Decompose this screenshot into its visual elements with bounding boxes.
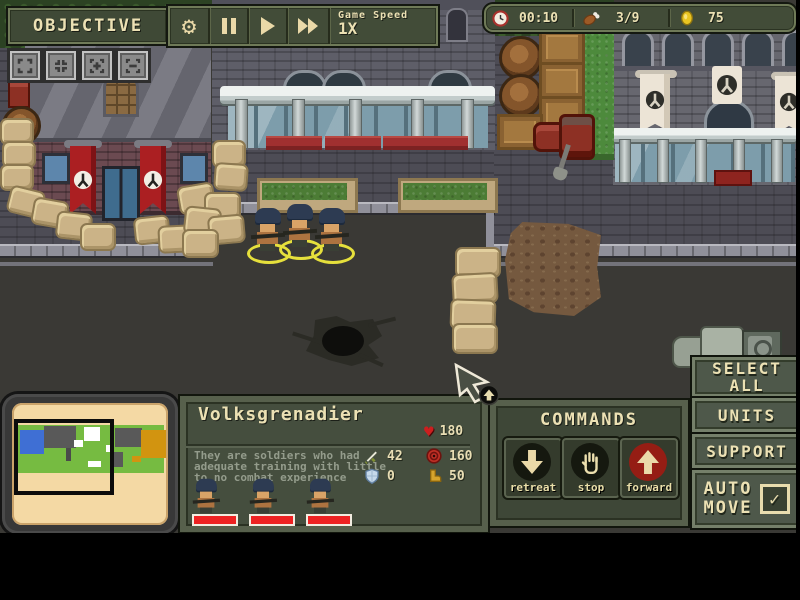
fast-forward-button[interactable] <box>288 8 330 44</box>
auto-move-toggle[interactable]: AUTO MOVE ✓ <box>692 470 800 528</box>
rations-value: 3/9 <box>616 11 639 26</box>
zoom-in-icon <box>88 57 106 75</box>
shrink-view-button[interactable] <box>46 51 76 80</box>
arch-window <box>702 30 734 70</box>
zoom-out-button[interactable] <box>118 51 148 80</box>
speed-value: 50 <box>449 469 465 484</box>
arch-window <box>622 30 654 70</box>
auto-move-line1: AUTO <box>704 480 753 499</box>
retreat-label: retreat <box>506 481 560 494</box>
arch-window <box>742 30 774 70</box>
game-screen: OBJECTIVE ⚙ Game Speed 1X <box>0 0 800 600</box>
settings-button[interactable]: ⚙ <box>170 8 210 44</box>
select-all-button[interactable]: SELECT ALL <box>692 357 800 397</box>
units-button[interactable]: UNITS <box>692 398 800 432</box>
faction-emblem-icon <box>73 170 93 190</box>
crater <box>298 310 390 372</box>
heart-icon: ♥ <box>424 422 434 441</box>
units-label: UNITS <box>718 406 776 425</box>
coin-icon <box>680 10 694 26</box>
hedge-planter <box>398 178 498 213</box>
pause-icon <box>222 18 236 34</box>
play-icon <box>261 17 275 35</box>
door <box>102 166 140 221</box>
minimap-block <box>115 428 142 447</box>
retreat-button[interactable]: retreat <box>504 438 562 498</box>
hedge <box>262 183 347 200</box>
right-building <box>613 28 796 185</box>
stop-button[interactable]: stop <box>562 438 620 498</box>
hp-bar <box>249 514 295 526</box>
dirt-patch <box>505 222 601 316</box>
auto-move-checkbox[interactable]: ✓ <box>760 484 790 514</box>
fast-forward-icon <box>298 18 318 34</box>
soldier-unit[interactable] <box>314 207 350 263</box>
hedge <box>403 183 487 200</box>
timer-value: 00:10 <box>519 11 558 26</box>
crate <box>539 62 585 100</box>
helmet <box>319 208 345 223</box>
unit-info-panel: Volksgrenadier ♥ 180 They are soldiers w… <box>180 396 488 532</box>
zoom-in-button[interactable] <box>82 51 112 80</box>
mouse-cursor-icon <box>452 362 500 406</box>
timer-display: 00:10 <box>486 10 572 27</box>
minimap-viewport[interactable] <box>14 419 114 495</box>
gold-value: 75 <box>708 11 724 26</box>
column <box>658 140 668 182</box>
support-button[interactable]: SUPPORT <box>692 434 800 468</box>
squad-list <box>192 478 362 522</box>
red-banner <box>140 146 166 214</box>
forward-button[interactable]: forward <box>620 438 678 498</box>
curb <box>486 210 494 250</box>
hp-value: 180 <box>440 424 463 439</box>
upper-window <box>446 8 468 42</box>
boot-icon <box>426 468 442 484</box>
window <box>42 153 70 184</box>
game-speed-value: 1X <box>338 19 428 38</box>
armor-value: 0 <box>387 469 395 484</box>
hp-stat: ♥ 180 <box>424 422 463 441</box>
shield-icon <box>364 468 380 484</box>
road-edge-line <box>0 262 213 266</box>
faction-emblem-icon <box>645 90 665 110</box>
minimap-block <box>114 452 123 467</box>
drumstick-icon <box>582 10 600 27</box>
clock-icon <box>492 10 509 27</box>
minimap-block <box>132 456 141 462</box>
barrel <box>499 74 543 118</box>
unit-name: Volksgrenadier <box>198 404 364 425</box>
soldier-unit[interactable] <box>250 207 286 263</box>
hp-bar <box>306 514 352 526</box>
range-stat: 160 <box>426 448 472 464</box>
select-all-line2: ALL <box>730 377 765 394</box>
divider <box>186 444 470 446</box>
pause-button[interactable] <box>210 8 249 44</box>
hand-icon <box>577 449 603 475</box>
minimap-paper <box>12 403 168 525</box>
armor-stat: 0 <box>364 468 395 484</box>
arrow-up-icon <box>637 450 659 474</box>
door-mat <box>714 170 752 186</box>
column <box>620 140 630 182</box>
red-awning <box>325 136 381 150</box>
stop-label: stop <box>564 481 618 494</box>
letterbox-right <box>796 0 800 600</box>
zoom-out-icon <box>124 57 142 75</box>
forward-label: forward <box>622 481 676 494</box>
speed-stat: 50 <box>426 468 465 484</box>
commands-title: COMMANDS <box>496 410 682 430</box>
game-speed-display: Game Speed 1X <box>330 8 436 44</box>
red-barrel <box>8 77 30 108</box>
shrink-icon <box>52 57 70 75</box>
letterbox-bottom <box>0 533 800 600</box>
column <box>696 140 706 182</box>
gear-icon: ⚙ <box>182 14 196 38</box>
support-label: SUPPORT <box>706 442 787 461</box>
helmet <box>287 204 313 219</box>
map-view-controls <box>10 51 148 80</box>
faction-emblem-icon <box>143 170 163 190</box>
commands-panel: COMMANDS retreat stop forward <box>490 400 688 526</box>
range-value: 160 <box>449 449 472 464</box>
attic-window <box>103 75 139 117</box>
expand-view-button[interactable] <box>10 51 40 80</box>
objective-button[interactable]: OBJECTIVE <box>8 8 168 44</box>
window <box>180 153 208 184</box>
play-button[interactable] <box>249 8 288 44</box>
sword-icon <box>364 448 380 464</box>
red-awning <box>266 136 322 150</box>
red-banner <box>70 146 96 214</box>
right-sidewalk <box>613 183 796 254</box>
arrow-down-icon <box>521 450 543 474</box>
check-icon: ✓ <box>769 489 782 510</box>
hp-bar <box>192 514 238 526</box>
expand-icon <box>16 57 34 75</box>
red-awning <box>383 136 468 150</box>
column <box>772 140 782 182</box>
supply-props <box>495 26 595 176</box>
arch-window <box>662 30 694 70</box>
rations-display: 3/9 <box>574 10 668 27</box>
minimap-panel[interactable] <box>2 394 178 534</box>
crate <box>539 28 585 66</box>
faction-emblem-icon <box>716 74 738 96</box>
objective-label: OBJECTIVE <box>33 16 143 36</box>
attack-stat: 42 <box>364 448 403 464</box>
speed-control-bar: ⚙ Game Speed 1X <box>168 6 438 46</box>
minimap-block <box>141 430 166 458</box>
gold-display: 75 <box>670 10 794 26</box>
attack-value: 42 <box>387 449 403 464</box>
target-icon <box>426 448 442 464</box>
resource-bar: 00:10 3/9 75 <box>484 4 796 32</box>
select-all-line1: SELECT <box>712 360 782 377</box>
helmet <box>255 208 281 223</box>
auto-move-line2: MOVE <box>704 499 753 518</box>
